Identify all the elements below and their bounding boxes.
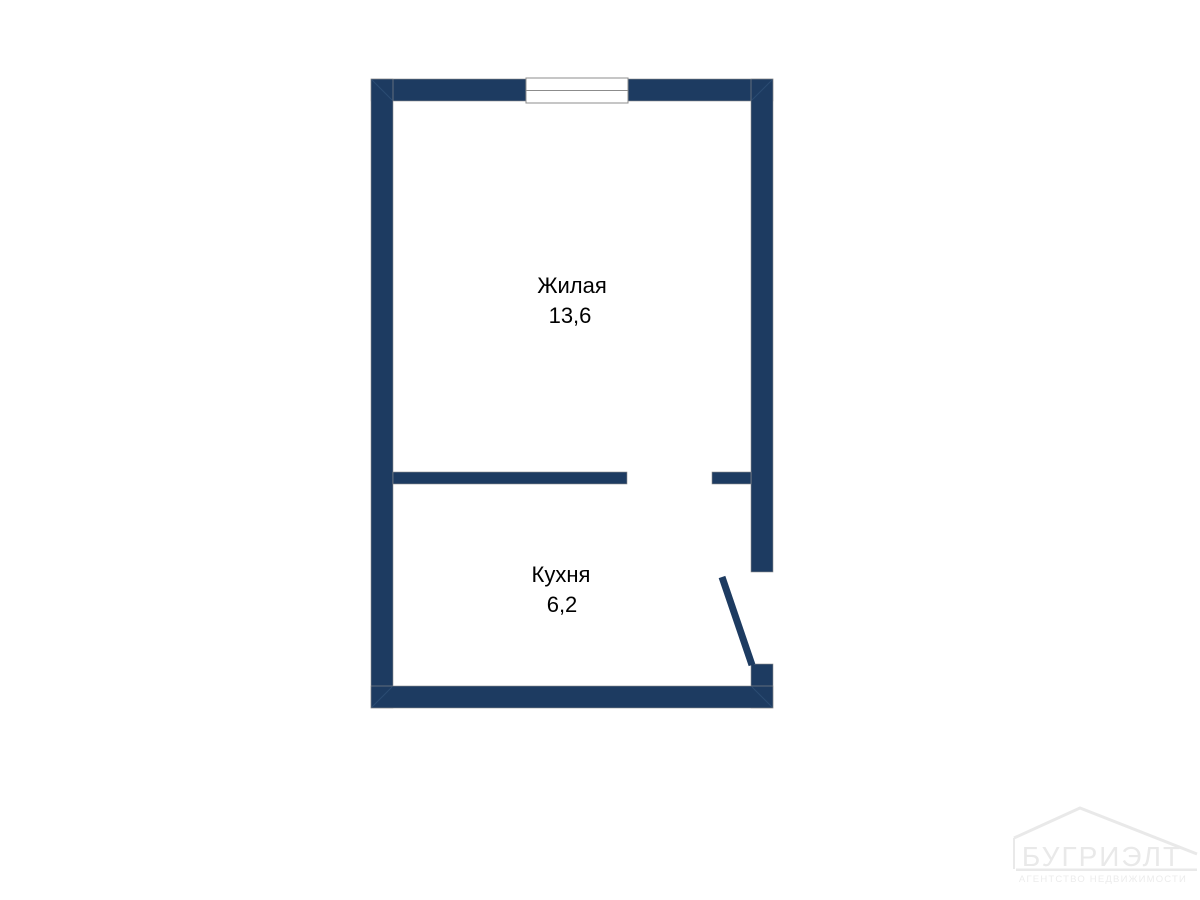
- room-area-kitchen: 6,2: [547, 592, 578, 617]
- room-label-living: Жилая: [537, 273, 607, 298]
- door-opening: [722, 577, 752, 665]
- right-wall-upper: [751, 79, 773, 572]
- interior-wall-left-segment: [393, 472, 627, 484]
- window: [526, 78, 628, 103]
- room-labels: Жилая 13,6 Кухня 6,2: [532, 273, 607, 617]
- watermark-tagline: АГЕНТСТВО НЕДВИЖИМОСТИ: [1019, 874, 1187, 885]
- left-wall: [371, 79, 393, 708]
- floor-plan-drawing: Жилая 13,6 Кухня 6,2 БУГРИЭЛТ АГЕНТСТВО …: [0, 0, 1200, 900]
- floor-plan-page: Жилая 13,6 Кухня 6,2 БУГРИЭЛТ АГЕНТСТВО …: [0, 0, 1200, 900]
- watermark-brand: БУГРИЭЛТ: [1022, 841, 1182, 872]
- room-label-kitchen: Кухня: [532, 562, 591, 587]
- bottom-wall: [371, 686, 773, 708]
- room-area-living: 13,6: [549, 303, 592, 328]
- interior-wall-right-stub: [712, 472, 751, 484]
- watermark-divider: [1016, 869, 1197, 872]
- watermark-logo: БУГРИЭЛТ АГЕНТСТВО НЕДВИЖИМОСТИ: [1014, 808, 1197, 885]
- door-leaf: [722, 577, 752, 665]
